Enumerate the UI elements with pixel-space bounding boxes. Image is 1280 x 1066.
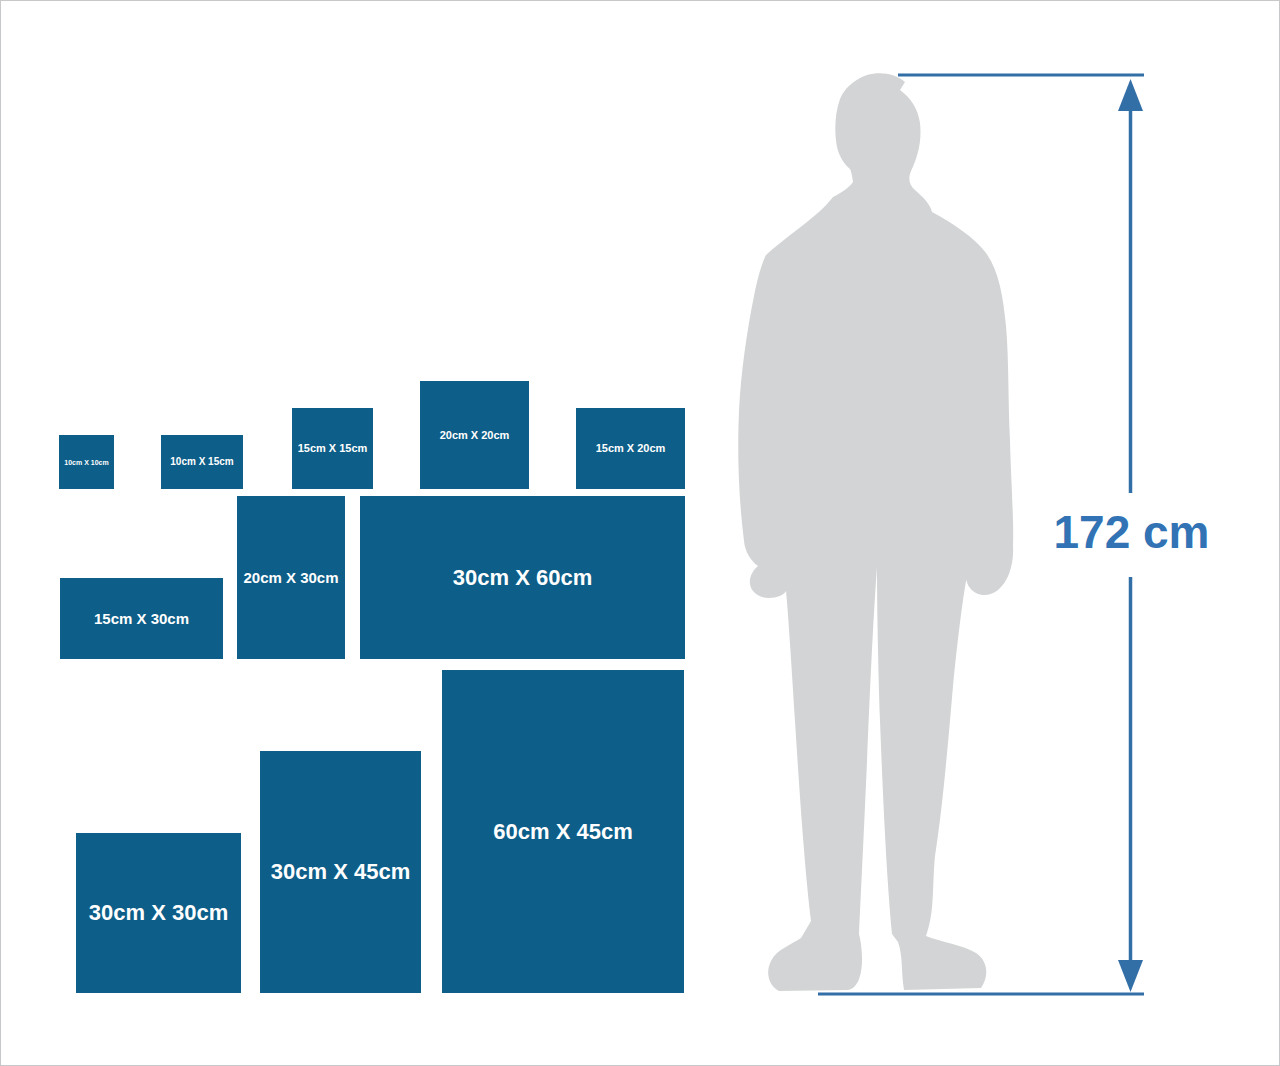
size-box-label: 10cm X 10cm	[64, 459, 108, 466]
size-box-20cm-x-20cm: 20cm X 20cm	[420, 381, 529, 489]
height-measure-arrowhead-down	[1118, 960, 1143, 992]
height-label: 172 cm	[1029, 509, 1234, 555]
person-silhouette	[738, 73, 1013, 991]
size-box-label: 60cm X 45cm	[493, 821, 632, 843]
size-box-10cm-x-10cm: 10cm X 10cm	[59, 435, 114, 489]
size-box-30cm-x-30cm: 30cm X 30cm	[76, 833, 241, 993]
size-box-10cm-x-15cm: 10cm X 15cm	[161, 435, 243, 489]
size-box-30cm-x-45cm: 30cm X 45cm	[260, 751, 421, 993]
size-box-30cm-x-60cm: 30cm X 60cm	[360, 496, 685, 659]
height-measure-arrowhead-up	[1118, 79, 1143, 111]
size-box-label: 15cm X 15cm	[298, 443, 368, 454]
size-box-15cm-x-20cm: 15cm X 20cm	[576, 408, 685, 489]
size-comparison-canvas: 10cm X 10cm10cm X 15cm15cm X 15cm20cm X …	[0, 0, 1280, 1066]
size-box-20cm-x-30cm: 20cm X 30cm	[237, 496, 345, 659]
size-box-label: 30cm X 30cm	[89, 902, 228, 924]
size-box-label: 20cm X 20cm	[440, 430, 510, 441]
size-box-label: 15cm X 20cm	[596, 443, 666, 454]
size-box-label: 30cm X 60cm	[453, 567, 592, 589]
size-box-label: 10cm X 15cm	[170, 457, 233, 467]
size-box-15cm-x-15cm: 15cm X 15cm	[292, 408, 373, 489]
size-box-15cm-x-30cm: 15cm X 30cm	[60, 578, 223, 659]
size-box-60cm-x-45cm: 60cm X 45cm	[442, 670, 684, 993]
size-box-label: 30cm X 45cm	[271, 861, 410, 883]
size-box-label: 15cm X 30cm	[94, 611, 189, 626]
size-box-label: 20cm X 30cm	[243, 570, 338, 585]
